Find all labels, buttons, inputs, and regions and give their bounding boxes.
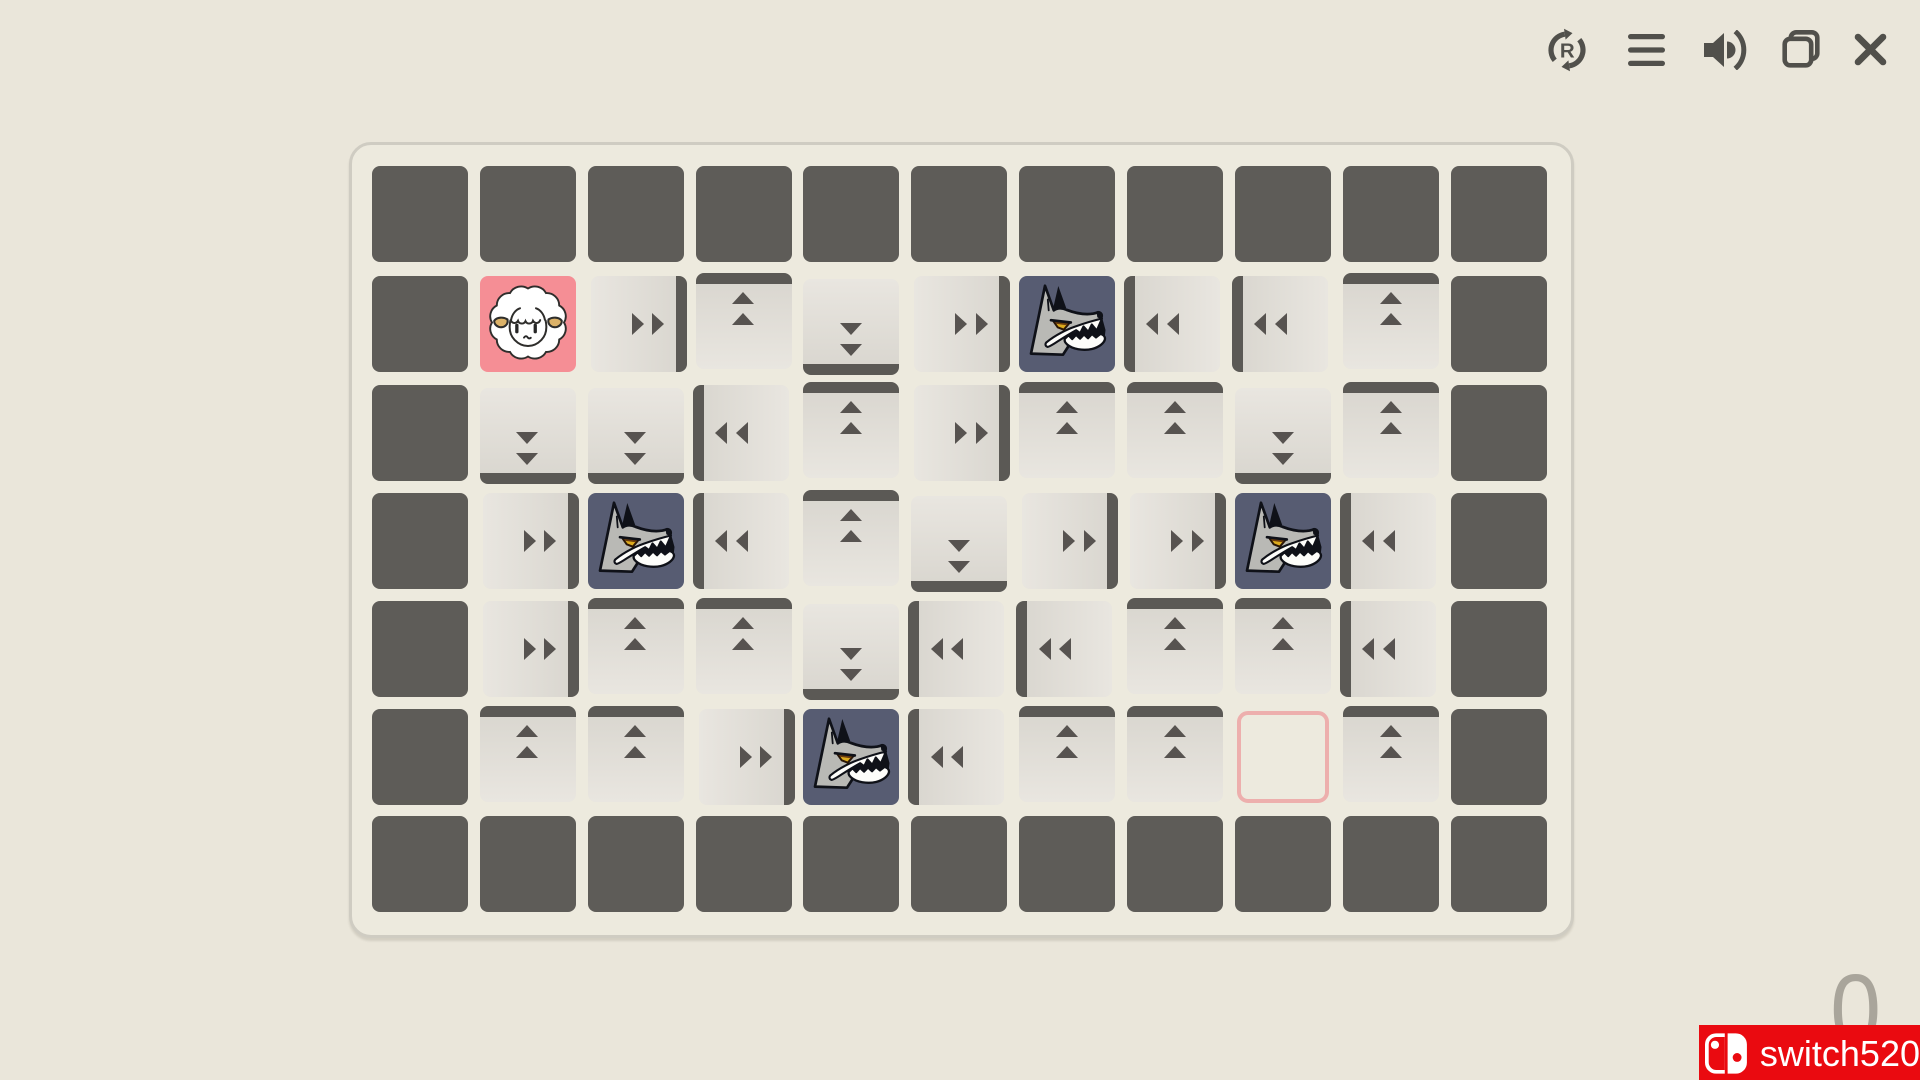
svg-text:R: R [1560, 40, 1575, 63]
